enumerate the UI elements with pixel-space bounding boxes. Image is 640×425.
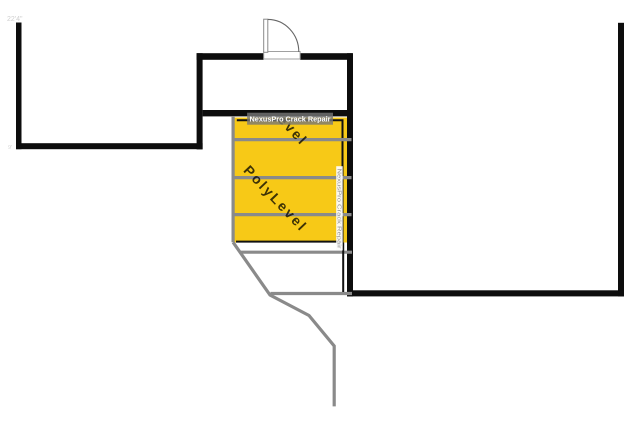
svg-text:9': 9' — [8, 145, 12, 151]
svg-text:NexusPro Crack Repair: NexusPro Crack Repair — [336, 169, 342, 249]
svg-text:22'4": 22'4" — [7, 16, 23, 23]
svg-text:NexusPro Crack Repair: NexusPro Crack Repair — [250, 115, 331, 124]
